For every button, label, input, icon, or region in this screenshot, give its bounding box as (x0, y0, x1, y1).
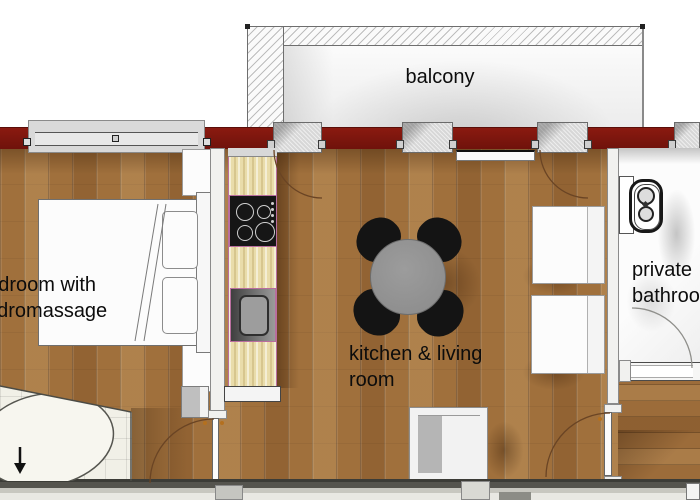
window-center-mark (112, 135, 119, 142)
bottom-wall-footer (0, 493, 700, 500)
bottom-white-stub (686, 483, 700, 500)
bathroom-top-shadow (619, 148, 700, 164)
door-jamb (584, 140, 592, 149)
wall-living-bathroom (607, 148, 619, 404)
wall-bedroom-kitchen (210, 148, 225, 413)
kitchen-living-label: kitchen & living room (349, 341, 482, 393)
bottom-threshold-2 (461, 481, 490, 500)
bathroom-label-line1: private (632, 257, 700, 283)
door-jamb (449, 140, 457, 149)
gas-hob (229, 195, 277, 247)
shadow-tub-edge (131, 408, 187, 481)
bedroom-label-line2: hydromassage (0, 298, 107, 324)
pillow-top (162, 211, 198, 269)
window-tick-right (203, 138, 211, 146)
counter-base-cabinet (224, 386, 281, 402)
bottom-gray-block (499, 492, 531, 500)
bedroom-label-line1: bedroom with (0, 272, 107, 298)
balcony-post-left (245, 24, 250, 29)
sofa-seat-2 (531, 295, 605, 374)
wall-end-cap (619, 360, 631, 382)
bathroom-door-threshold (629, 365, 693, 378)
floor-plan: balcony bedroom with hydromassage kitche… (0, 0, 700, 500)
kitchen-sink-basin (239, 295, 269, 336)
pillow-bottom (162, 277, 198, 334)
hob-control (271, 208, 274, 211)
armchair-seat-panel (418, 415, 442, 473)
hob-control (271, 202, 274, 205)
nightstand-top (182, 149, 212, 196)
balcony-door-living-threshold (537, 122, 588, 153)
balcony-wall-left (247, 26, 284, 129)
bathroom-label: private bathroom (632, 257, 700, 309)
toilet (629, 179, 663, 233)
balcony-label: balcony (380, 64, 500, 90)
door-jamb (318, 140, 326, 149)
counter-top-cap (228, 148, 277, 157)
hob-control (271, 220, 274, 223)
hall-door-leaf (604, 412, 612, 476)
balcony-window-center-threshold (402, 122, 453, 153)
sofa-seat-1 (532, 206, 605, 284)
armchair-edge (418, 415, 480, 416)
toilet-bowl-bottom (638, 206, 654, 222)
burner (236, 203, 254, 221)
bottom-wall (0, 479, 700, 493)
bathroom-label-line2: bathroom (632, 283, 700, 309)
bottom-threshold-1 (215, 485, 243, 500)
balcony-door-kitchen-threshold (273, 122, 322, 153)
kitchen-counter (228, 148, 277, 388)
sideboard (456, 150, 535, 161)
burner (255, 222, 275, 242)
hob-control (271, 214, 274, 217)
sofa-backrest (587, 207, 604, 283)
shadow-hall-corner (618, 430, 700, 481)
balcony-wall-top (247, 26, 644, 46)
shadow-counter-edge (277, 150, 299, 388)
balcony-label-text: balcony (406, 66, 475, 88)
door-jamb (531, 140, 539, 149)
bedroom-door-leaf (212, 418, 219, 481)
square-armchair (409, 407, 488, 487)
sofa-backrest (587, 296, 604, 373)
kitchen-living-label-line2: room (349, 367, 482, 393)
window-tick-left (23, 138, 31, 146)
burner (257, 205, 271, 219)
door-jamb (396, 140, 404, 149)
kitchen-living-label-line1: kitchen & living (349, 341, 482, 367)
burner (237, 225, 253, 241)
dining-table (370, 239, 446, 315)
bedroom-window (28, 120, 205, 153)
balcony-edge-right (642, 26, 644, 128)
balcony-post-right (640, 24, 645, 29)
bedroom-cabinet (181, 386, 209, 418)
bedroom-label: bedroom with hydromassage (0, 272, 107, 324)
